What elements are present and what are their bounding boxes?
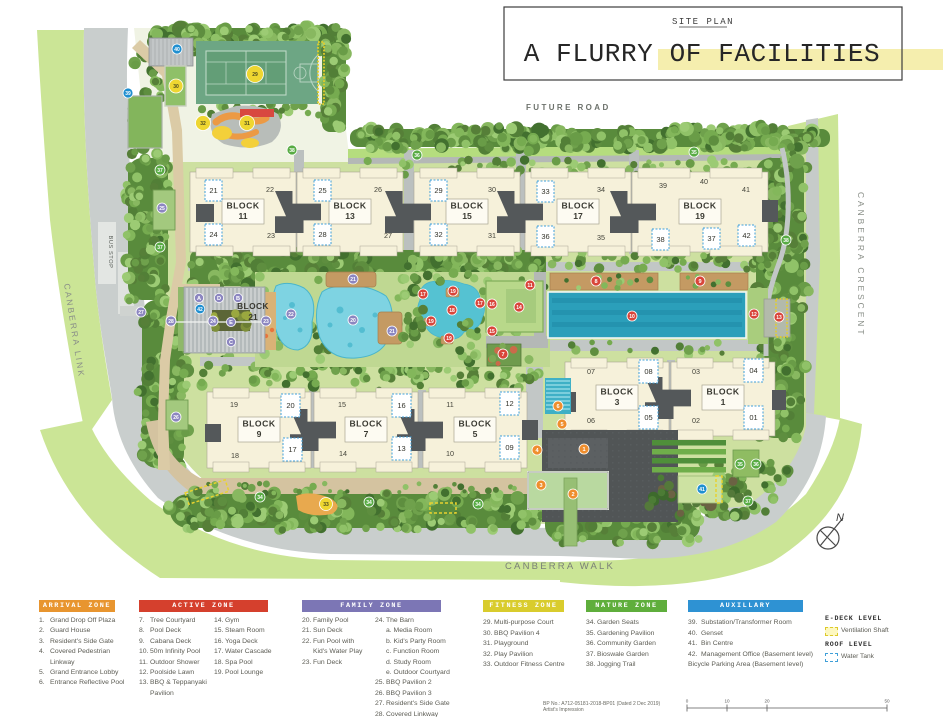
svg-text:36: 36: [414, 153, 420, 159]
svg-text:5: 5: [473, 429, 478, 439]
svg-text:34: 34: [597, 185, 605, 194]
svg-text:D: D: [217, 296, 221, 302]
svg-text:34: 34: [257, 495, 263, 501]
svg-text:18: 18: [231, 451, 239, 460]
svg-text:39: 39: [125, 91, 131, 97]
svg-text:33: 33: [323, 502, 329, 508]
svg-text:0: 0: [686, 699, 689, 704]
svg-text:34: 34: [475, 502, 481, 508]
svg-text:19: 19: [428, 319, 434, 325]
svg-text:40: 40: [700, 177, 708, 186]
svg-text:37: 37: [707, 234, 715, 243]
svg-text:29: 29: [434, 186, 442, 195]
svg-text:22: 22: [288, 312, 294, 318]
svg-text:BLOCK: BLOCK: [683, 201, 716, 211]
svg-text:01: 01: [749, 413, 757, 422]
svg-text:09: 09: [505, 443, 513, 452]
svg-text:21: 21: [350, 277, 356, 283]
svg-text:E: E: [229, 320, 233, 326]
svg-text:17: 17: [420, 292, 426, 298]
svg-text:C: C: [229, 340, 233, 346]
svg-text:21: 21: [209, 186, 217, 195]
svg-text:23: 23: [263, 319, 269, 325]
svg-text:25: 25: [318, 186, 326, 195]
svg-text:15: 15: [462, 211, 472, 221]
svg-text:BLOCK: BLOCK: [242, 419, 275, 429]
svg-text:16: 16: [397, 401, 405, 410]
svg-text:32: 32: [200, 121, 206, 127]
svg-text:25: 25: [159, 206, 165, 212]
svg-text:19: 19: [695, 211, 705, 221]
svg-text:13: 13: [345, 211, 355, 221]
svg-text:20: 20: [286, 401, 294, 410]
svg-text:17: 17: [573, 211, 583, 221]
svg-text:12: 12: [751, 312, 757, 318]
svg-text:11: 11: [446, 400, 453, 409]
svg-text:17: 17: [477, 301, 483, 307]
svg-text:07: 07: [587, 367, 595, 376]
svg-text:37: 37: [745, 499, 751, 505]
svg-text:34: 34: [366, 500, 372, 506]
svg-text:26: 26: [173, 415, 179, 421]
svg-text:CANBERRA CRESCENT: CANBERRA CRESCENT: [856, 192, 866, 337]
svg-text:19: 19: [446, 336, 452, 342]
svg-text:50: 50: [884, 699, 890, 704]
svg-text:BLOCK: BLOCK: [333, 201, 366, 211]
svg-text:FUTURE ROAD: FUTURE ROAD: [526, 103, 611, 112]
svg-text:05: 05: [644, 413, 652, 422]
svg-text:42: 42: [742, 231, 750, 240]
svg-text:22: 22: [266, 185, 274, 194]
svg-text:14: 14: [516, 305, 522, 311]
svg-text:08: 08: [644, 367, 652, 376]
svg-text:38: 38: [289, 148, 295, 154]
svg-text:5: 5: [560, 422, 563, 428]
svg-text:26: 26: [374, 185, 382, 194]
svg-text:31: 31: [244, 121, 250, 127]
svg-text:28: 28: [318, 230, 326, 239]
svg-text:32: 32: [434, 230, 442, 239]
svg-text:SITE PLAN: SITE PLAN: [672, 17, 734, 27]
svg-text:42: 42: [197, 307, 203, 313]
svg-text:20: 20: [764, 699, 770, 704]
svg-text:6: 6: [556, 404, 559, 410]
svg-text:11: 11: [527, 283, 533, 289]
svg-text:38: 38: [783, 238, 789, 244]
svg-text:27: 27: [384, 231, 392, 240]
svg-text:BLOCK: BLOCK: [458, 419, 491, 429]
svg-text:28: 28: [168, 319, 174, 325]
svg-text:BLOCK: BLOCK: [706, 387, 739, 397]
svg-text:BLOCK: BLOCK: [226, 201, 259, 211]
svg-text:33: 33: [541, 187, 549, 196]
svg-text:12: 12: [505, 399, 513, 408]
svg-text:20: 20: [350, 318, 356, 324]
svg-text:16: 16: [489, 302, 495, 308]
svg-text:24: 24: [209, 230, 217, 239]
svg-text:35: 35: [691, 150, 697, 156]
svg-text:B: B: [236, 296, 240, 302]
svg-text:03: 03: [692, 367, 700, 376]
svg-text:14: 14: [339, 449, 347, 458]
svg-text:35: 35: [737, 462, 743, 468]
svg-text:9: 9: [257, 429, 262, 439]
svg-text:1: 1: [582, 447, 585, 453]
svg-text:N: N: [836, 512, 844, 524]
svg-text:35: 35: [597, 233, 605, 242]
svg-text:3: 3: [539, 483, 542, 489]
svg-text:8: 8: [594, 279, 597, 285]
svg-text:41: 41: [742, 185, 750, 194]
svg-text:17: 17: [288, 445, 296, 454]
svg-text:11: 11: [238, 211, 247, 221]
svg-text:41: 41: [699, 487, 705, 493]
svg-text:7: 7: [364, 429, 369, 439]
svg-text:2: 2: [571, 492, 574, 498]
svg-text:23: 23: [267, 231, 275, 240]
svg-text:21: 21: [389, 329, 395, 335]
svg-text:24: 24: [210, 319, 216, 325]
svg-text:29: 29: [252, 72, 258, 78]
svg-text:36: 36: [753, 462, 759, 468]
svg-text:A FLURRY OF FACILITIES: A FLURRY OF FACILITIES: [524, 39, 880, 69]
svg-text:10: 10: [724, 699, 730, 704]
svg-text:13: 13: [397, 444, 405, 453]
svg-text:40: 40: [174, 47, 180, 53]
svg-text:39: 39: [659, 181, 667, 190]
svg-text:1: 1: [721, 397, 726, 407]
svg-text:BLOCK: BLOCK: [600, 387, 633, 397]
svg-text:02: 02: [692, 416, 700, 425]
svg-text:19: 19: [230, 400, 238, 409]
svg-text:3: 3: [615, 397, 620, 407]
svg-text:10: 10: [629, 314, 635, 320]
svg-text:BLOCK: BLOCK: [561, 201, 594, 211]
svg-text:15: 15: [489, 329, 495, 335]
svg-text:BLOCK: BLOCK: [349, 419, 382, 429]
svg-text:37: 37: [157, 168, 163, 174]
svg-text:30: 30: [488, 185, 496, 194]
svg-text:18: 18: [449, 308, 455, 314]
svg-text:10: 10: [446, 449, 454, 458]
svg-text:06: 06: [587, 416, 595, 425]
svg-text:27: 27: [138, 310, 144, 316]
svg-text:BUS STOP: BUS STOP: [107, 236, 113, 269]
svg-text:19: 19: [450, 289, 456, 295]
svg-text:21: 21: [248, 312, 258, 322]
svg-text:15: 15: [338, 400, 346, 409]
svg-text:04: 04: [749, 366, 757, 375]
svg-text:BLOCK: BLOCK: [450, 201, 483, 211]
svg-text:A: A: [197, 296, 201, 302]
svg-text:31: 31: [488, 231, 496, 240]
svg-text:30: 30: [173, 84, 179, 90]
svg-text:7: 7: [501, 352, 504, 358]
svg-text:38: 38: [656, 235, 664, 244]
svg-text:9: 9: [698, 279, 701, 285]
svg-text:37: 37: [157, 245, 163, 251]
svg-text:BLOCK: BLOCK: [237, 301, 269, 311]
svg-text:CANBERRA WALK: CANBERRA WALK: [505, 561, 615, 572]
svg-text:36: 36: [541, 232, 549, 241]
svg-text:13: 13: [776, 315, 782, 321]
